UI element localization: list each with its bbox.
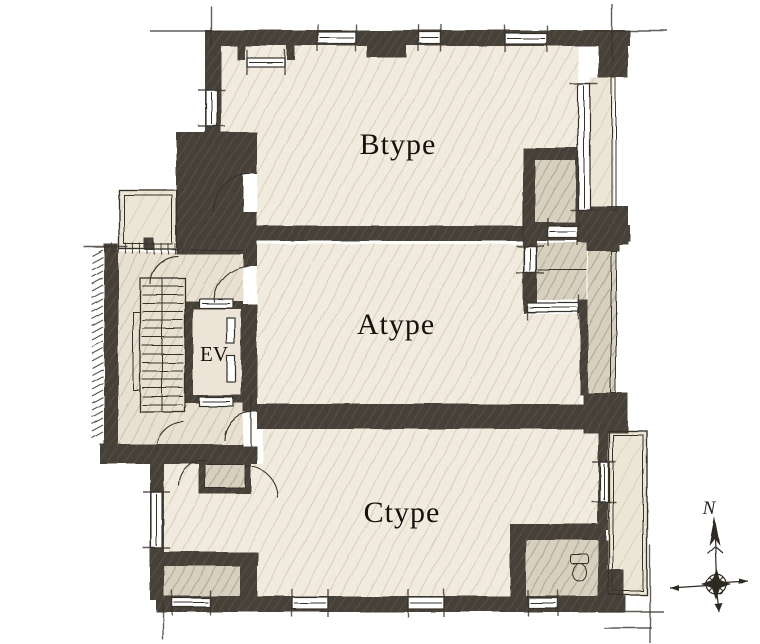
north-arrow (707, 516, 722, 580)
unit-label-atype: Atype (357, 308, 435, 341)
compass-rose (670, 516, 748, 612)
floor-plan-page: Btype Atype Ctype EV N (0, 0, 760, 644)
ctype-se-room (526, 540, 598, 596)
btype-east-balcony (590, 78, 614, 210)
btype-service-room (535, 160, 575, 222)
unit-label-btype: Btype (360, 128, 437, 161)
atype-service-room (537, 243, 587, 300)
atype-east-balcony (588, 251, 616, 393)
floor-plan: Btype Atype Ctype EV N (0, 0, 760, 644)
elevator-label: EV (200, 342, 228, 366)
ctype-sw-room (164, 566, 240, 596)
compass-north-label: N (702, 498, 717, 519)
ctype-entry-niche (205, 464, 245, 488)
unit-label-ctype: Ctype (364, 496, 441, 529)
